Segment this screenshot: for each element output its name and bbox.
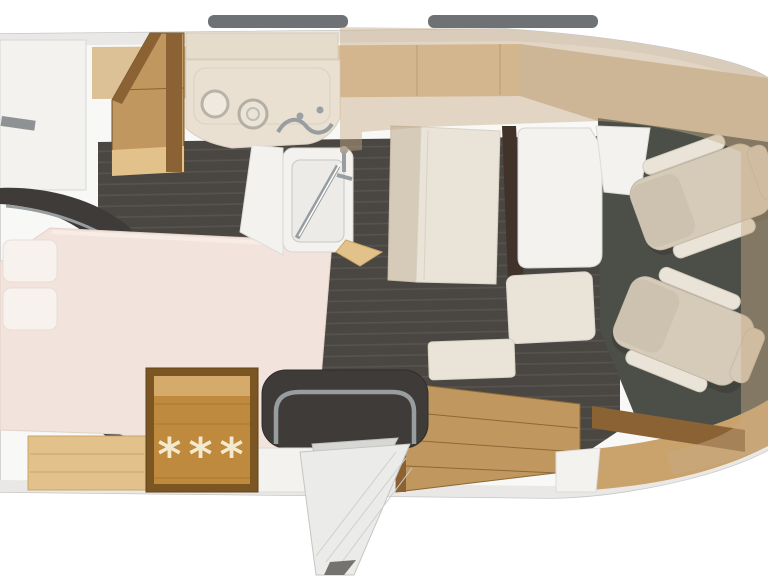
bed-steps bbox=[28, 436, 146, 490]
roof-rail-right bbox=[428, 15, 598, 28]
sideboard-top bbox=[428, 339, 515, 380]
side-bench bbox=[506, 271, 595, 343]
vanity-wall-cabinet bbox=[186, 33, 338, 59]
dinette-table bbox=[518, 128, 602, 268]
bathroom-vanity bbox=[186, 33, 340, 148]
bench-cushion bbox=[416, 127, 500, 284]
floorplan-scene bbox=[0, 0, 768, 576]
entrance bbox=[258, 438, 412, 575]
wardrobe-divider bbox=[166, 33, 182, 172]
washbasin bbox=[239, 100, 267, 128]
refrigerator-cabinet bbox=[146, 368, 258, 492]
pillow-1 bbox=[3, 240, 57, 282]
bench-backrest bbox=[388, 126, 421, 282]
dinette-bench bbox=[388, 126, 500, 284]
kitchen-worktop bbox=[262, 370, 428, 448]
rear-corner-cabinet bbox=[0, 40, 86, 190]
toilet bbox=[202, 91, 228, 117]
a-pillar-left bbox=[556, 448, 600, 492]
pillow-2 bbox=[3, 288, 57, 330]
roof-rail-left bbox=[208, 15, 348, 28]
floorplan-image: *** bbox=[0, 0, 768, 576]
